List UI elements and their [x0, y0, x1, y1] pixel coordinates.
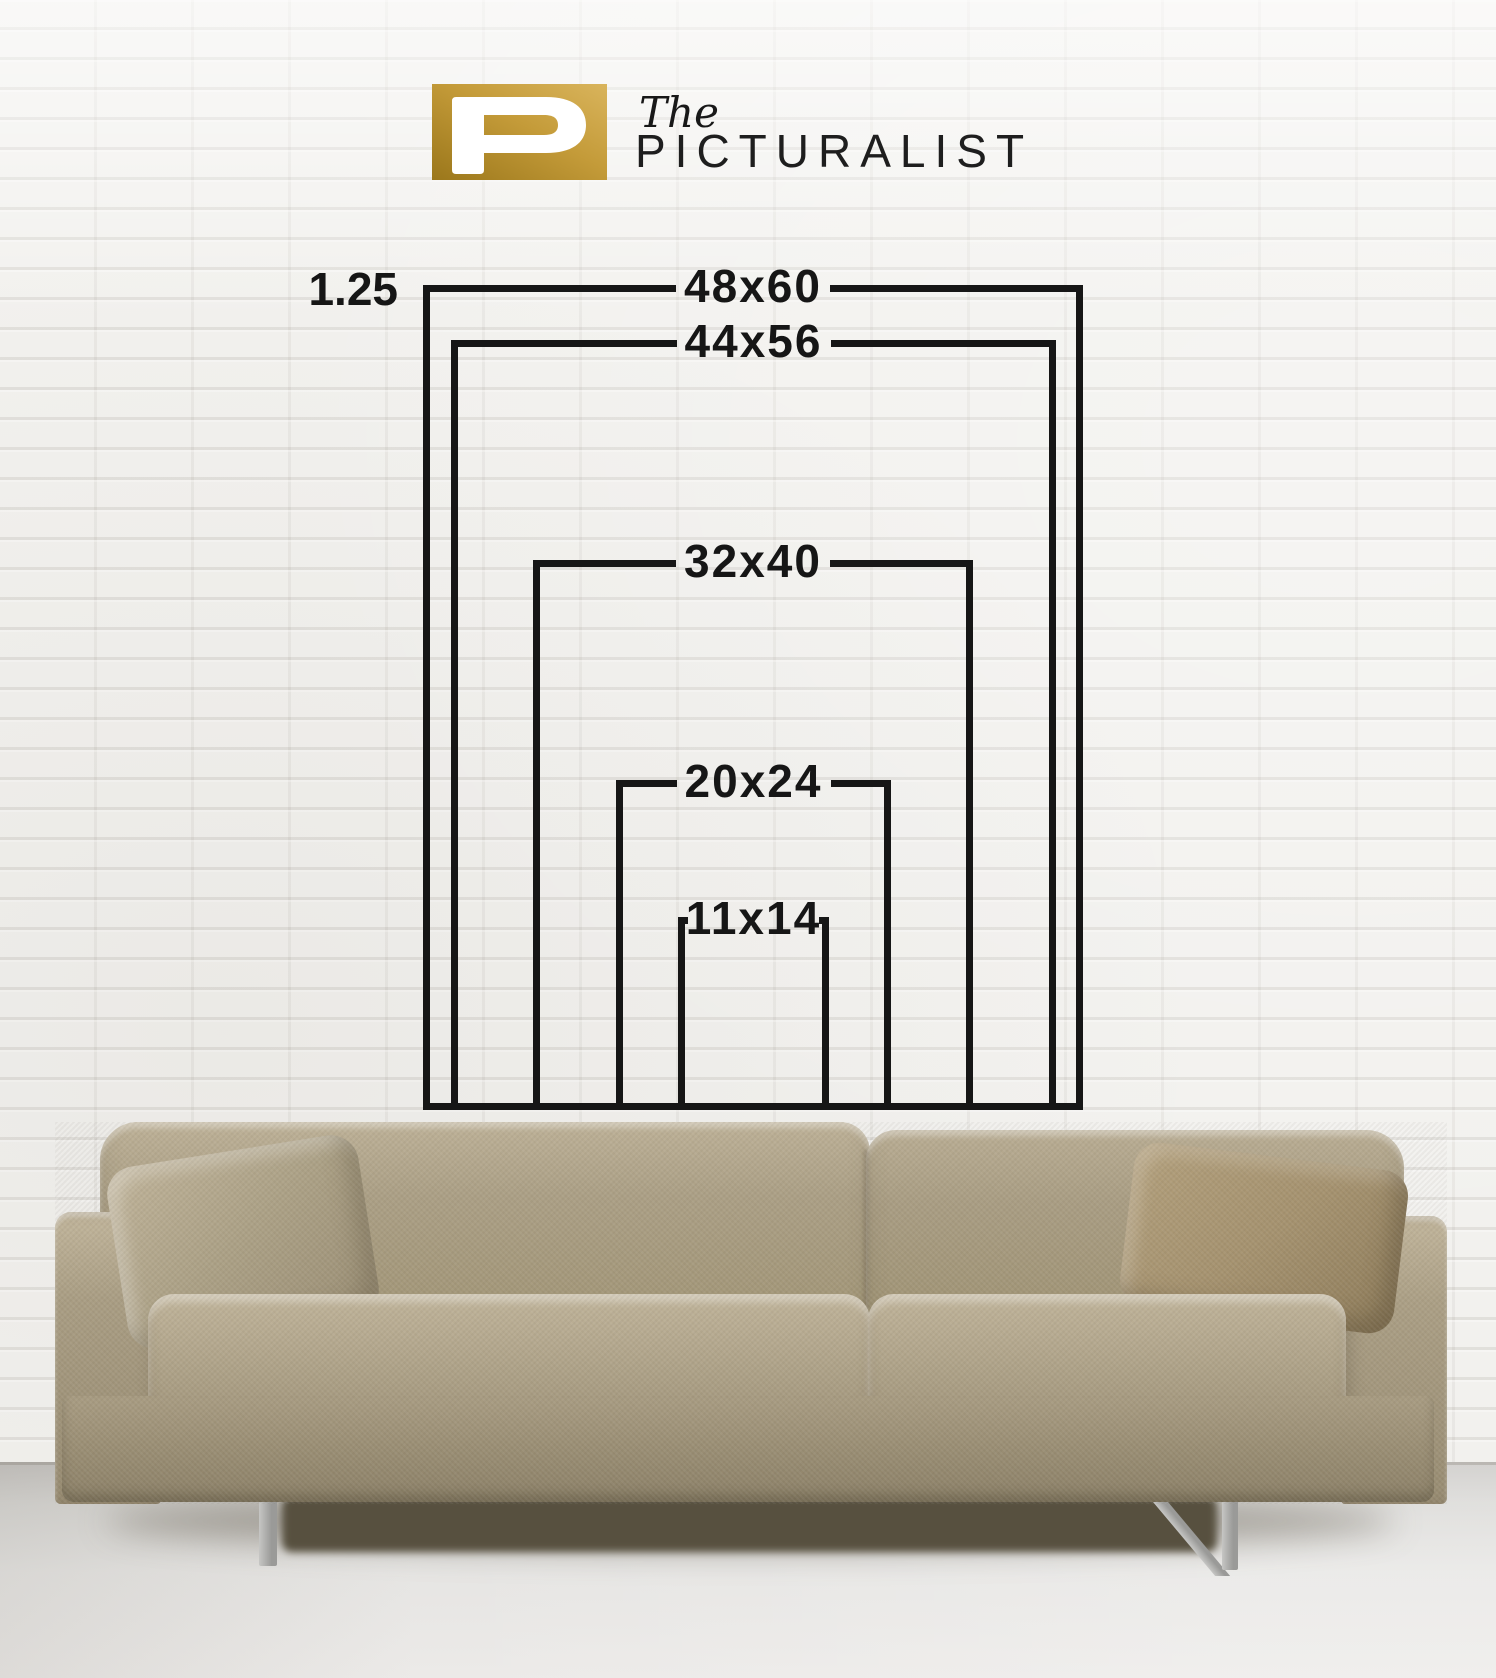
top-line-right — [830, 560, 973, 567]
size-label: 11x14 — [686, 891, 821, 945]
top-line-left — [423, 285, 676, 292]
sofa-leg-right — [1222, 1498, 1238, 1570]
top-line-right — [831, 780, 892, 787]
top-line-left — [616, 780, 677, 787]
picturalist-size-guide-image: The PICTURALIST 1.25 48x60 44x56 32x40 2… — [0, 0, 1496, 1678]
sofa-underside-shadow — [282, 1496, 1217, 1552]
top-line-left — [533, 560, 676, 567]
size-label: 32x40 — [684, 534, 822, 588]
size-label: 48x60 — [684, 259, 822, 313]
top-line-right — [831, 340, 1057, 347]
sofa-base — [62, 1396, 1434, 1502]
back-cushion-seam — [864, 1150, 868, 1310]
logo-gold-box — [432, 84, 607, 180]
logo-p-monogram-icon — [432, 84, 607, 180]
size-label: 44x56 — [685, 314, 823, 368]
top-line-right — [830, 285, 1083, 292]
top-line-left — [451, 340, 677, 347]
size-rect: 11x14 — [678, 917, 829, 1110]
size-label: 20x24 — [685, 754, 823, 808]
frame-depth-label: 1.25 — [258, 262, 398, 316]
sofa-leg-left — [259, 1498, 277, 1566]
brand-name: PICTURALIST — [635, 124, 1033, 178]
